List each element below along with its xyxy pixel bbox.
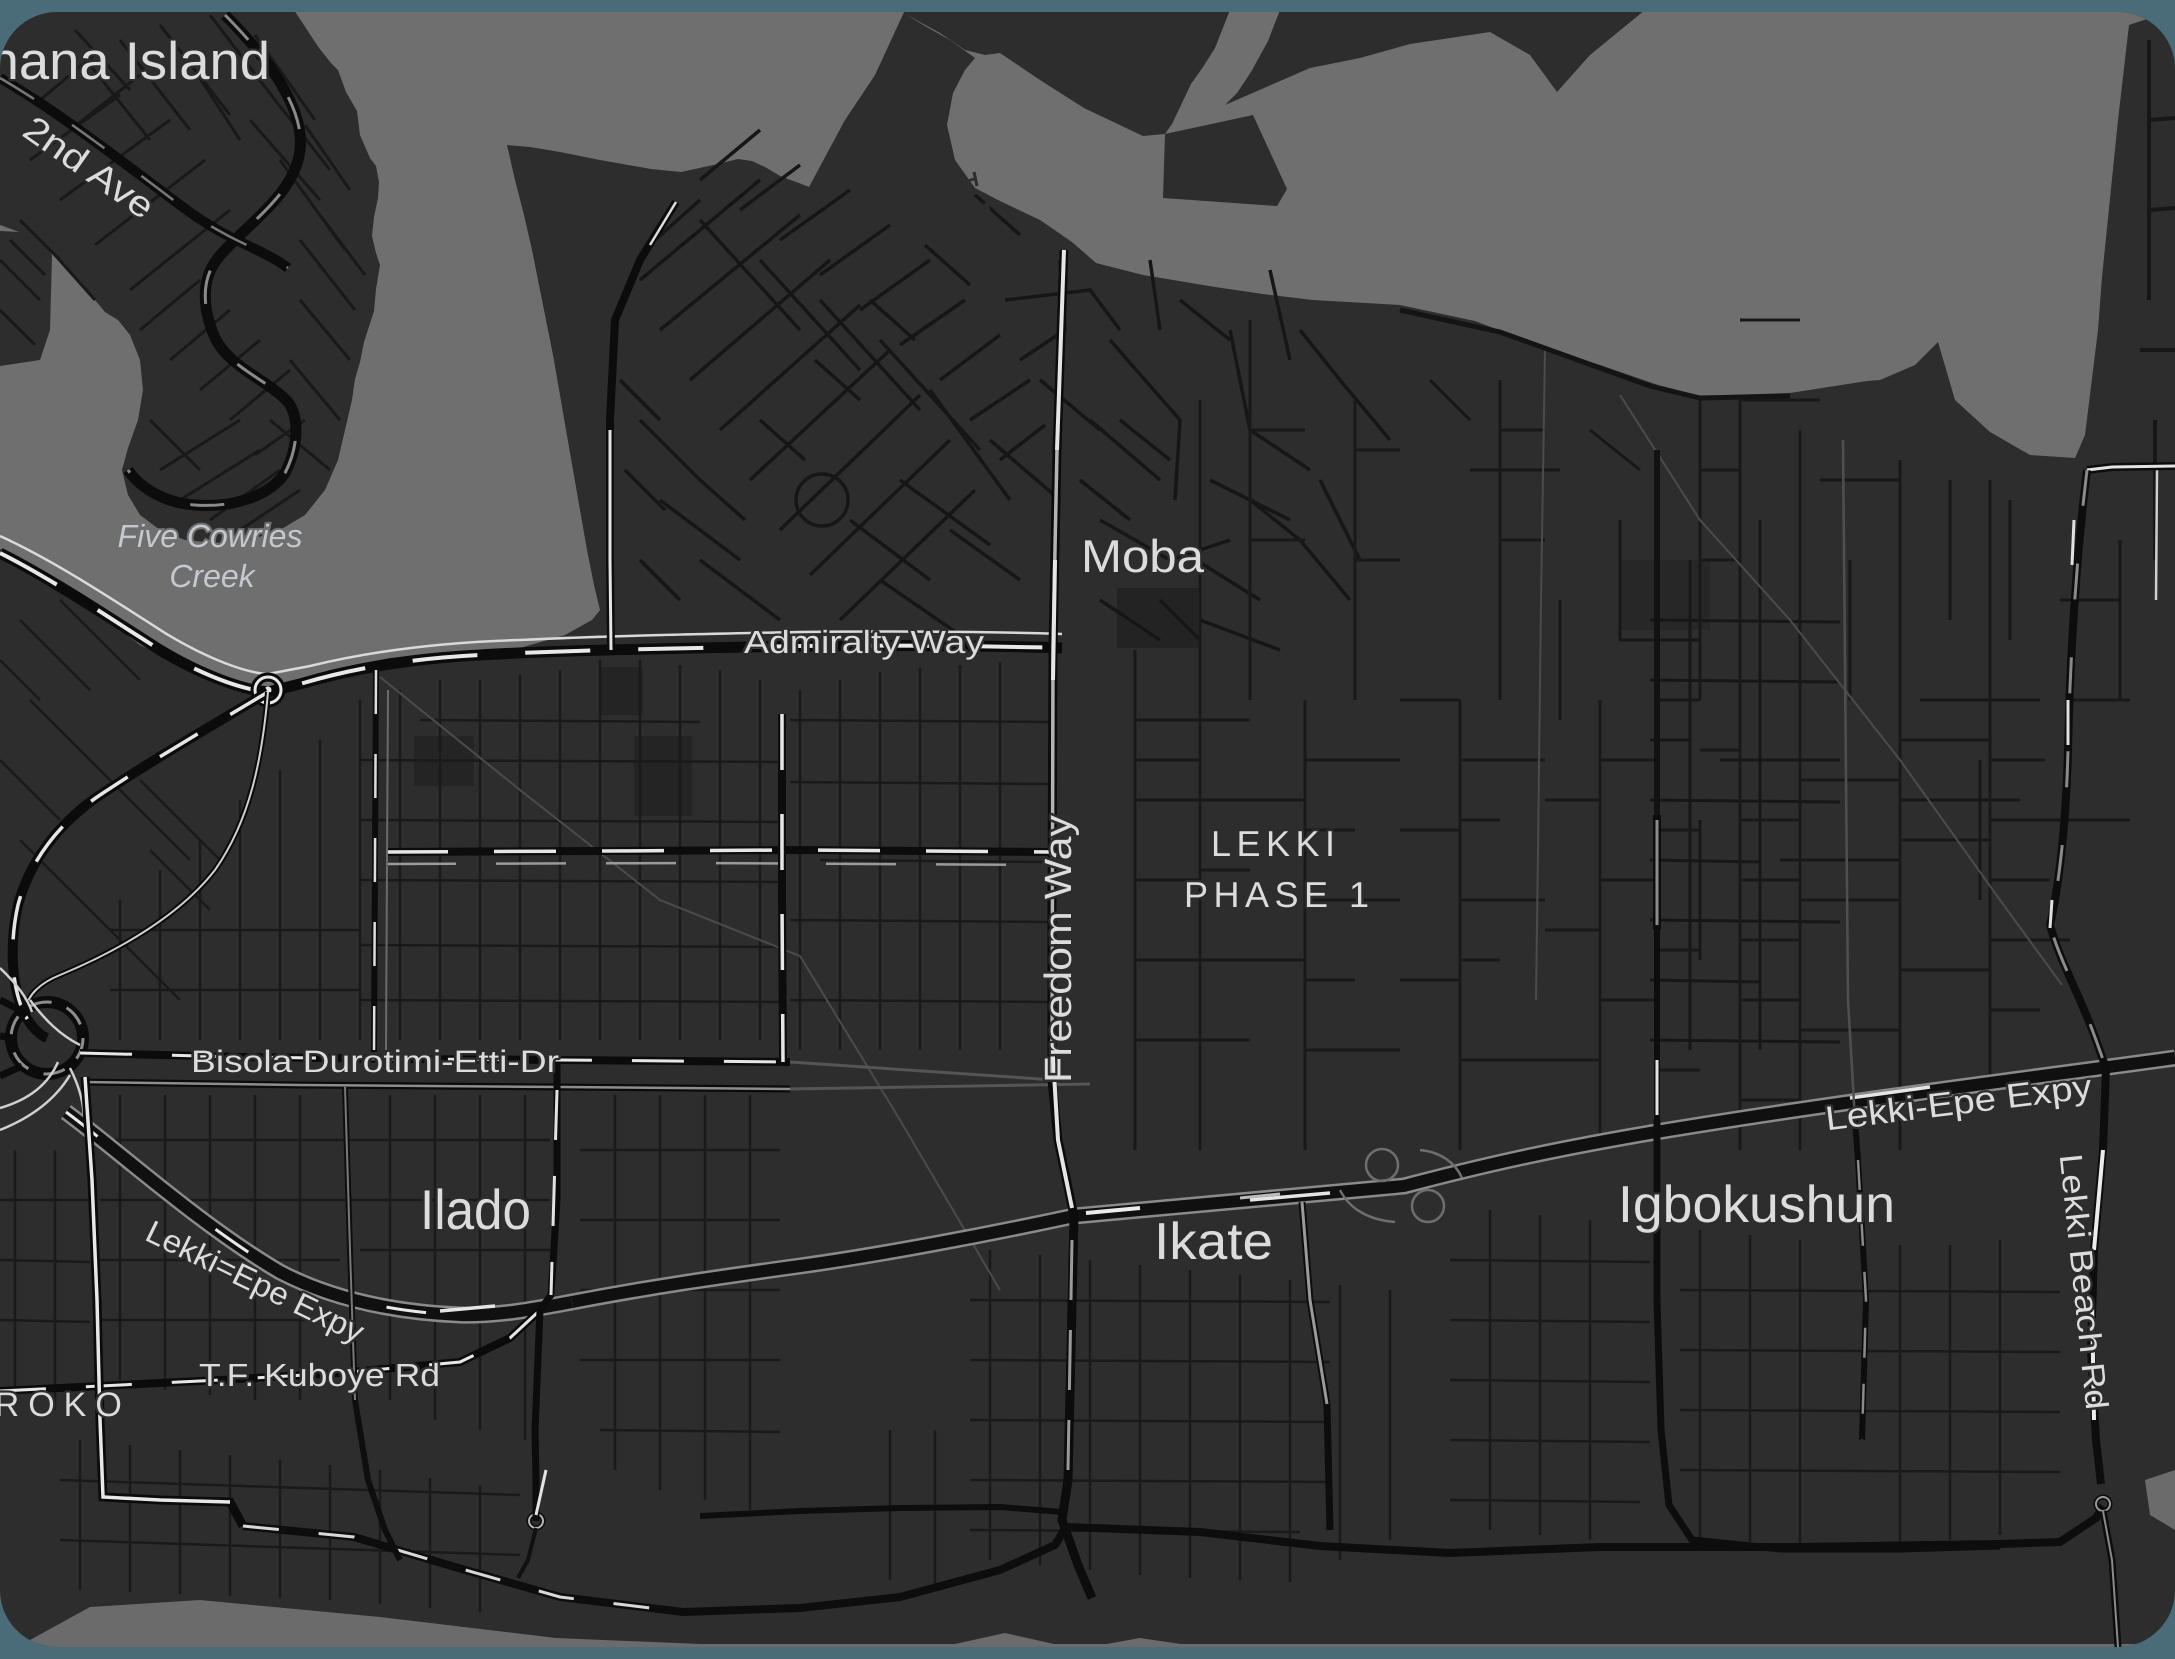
svg-text:AROKO: AROKO — [0, 1386, 131, 1424]
svg-text:Admiralty Way: Admiralty Way — [744, 624, 984, 660]
svg-text:LEKKI: LEKKI — [1211, 823, 1341, 864]
svg-text:Creek: Creek — [169, 558, 256, 594]
svg-text:Igbokushun: Igbokushun — [1618, 1176, 1895, 1234]
svg-text:Ilado: Ilado — [420, 1178, 531, 1241]
svg-text:Ikate: Ikate — [1154, 1213, 1273, 1271]
svg-text:T.F. Kuboye Rd: T.F. Kuboye Rd — [199, 1357, 440, 1393]
svg-text:Freedom Way: Freedom Way — [1038, 815, 1080, 1083]
svg-text:Five Cowries: Five Cowries — [118, 518, 303, 554]
svg-text:Banana Island: Banana Island — [0, 32, 270, 91]
svg-text:Moba: Moba — [1081, 530, 1204, 582]
svg-text:Bisola Durotimi-Etti-Dr: Bisola Durotimi-Etti-Dr — [191, 1044, 559, 1079]
svg-text:PHASE 1: PHASE 1 — [1184, 874, 1375, 915]
